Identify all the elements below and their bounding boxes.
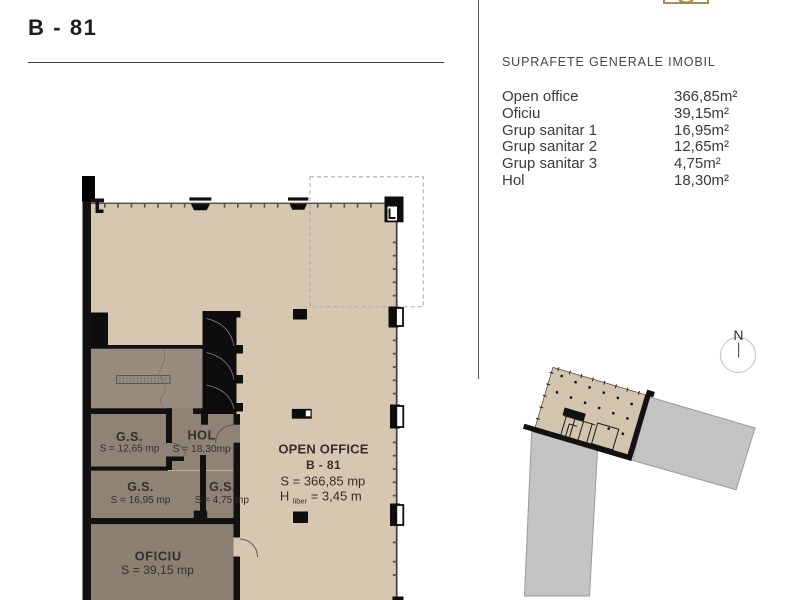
svg-text:HOL: HOL — [187, 427, 216, 442]
svg-text:N: N — [733, 327, 743, 343]
svg-text:S = 4,75 mp: S = 4,75 mp — [195, 495, 250, 506]
svg-text:S = 18,30mp: S = 18,30mp — [173, 444, 231, 455]
svg-text:OFICIU: OFICIU — [135, 549, 182, 564]
svg-text:H liber = 3,45 m: H liber = 3,45 m — [280, 489, 362, 506]
svg-text:S = 16,95 mp: S = 16,95 mp — [111, 495, 171, 506]
svg-text:OPEN OFFICE: OPEN OFFICE — [278, 441, 368, 456]
svg-text:B - 81: B - 81 — [306, 458, 341, 472]
svg-text:S = 366,85 mp: S = 366,85 mp — [280, 474, 365, 489]
svg-text:S = 39,15 mp: S = 39,15 mp — [121, 563, 194, 577]
svg-text:G.S.: G.S. — [116, 430, 143, 444]
svg-text:S = 12,65 mp: S = 12,65 mp — [100, 444, 160, 455]
svg-text:G.S.: G.S. — [209, 480, 236, 494]
svg-text:G.S.: G.S. — [127, 480, 154, 494]
